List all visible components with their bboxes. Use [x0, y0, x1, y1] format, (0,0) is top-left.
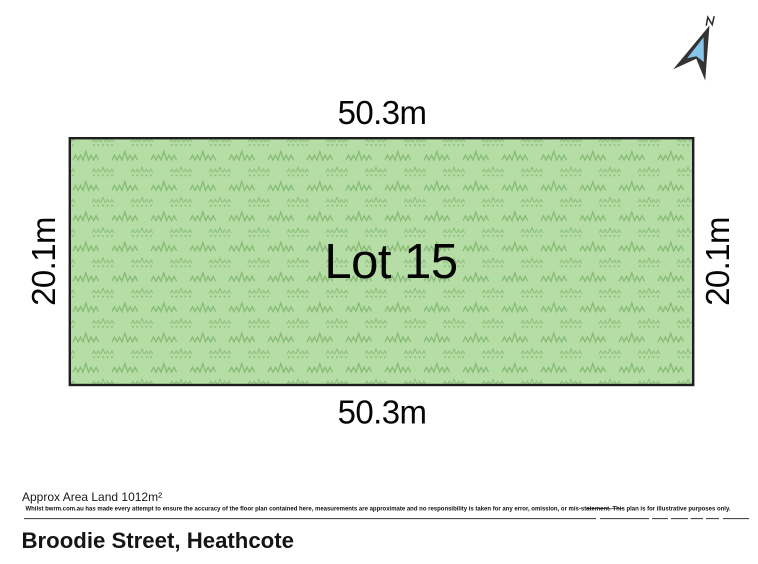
svg-text:Broodie Street, Heathcote: Broodie Street, Heathcote: [22, 528, 294, 553]
svg-text:Approx Area Land 1012m²: Approx Area Land 1012m²: [22, 490, 162, 504]
svg-text:20.1m: 20.1m: [25, 217, 62, 306]
svg-text:50.3m: 50.3m: [338, 94, 427, 131]
svg-text:Whilst bwrm.com.au has made ev: Whilst bwrm.com.au has made every attemp…: [26, 506, 731, 513]
svg-text:Lot 15: Lot 15: [324, 235, 457, 289]
svg-text:50.3m: 50.3m: [338, 394, 427, 431]
svg-text:20.1m: 20.1m: [699, 217, 736, 306]
